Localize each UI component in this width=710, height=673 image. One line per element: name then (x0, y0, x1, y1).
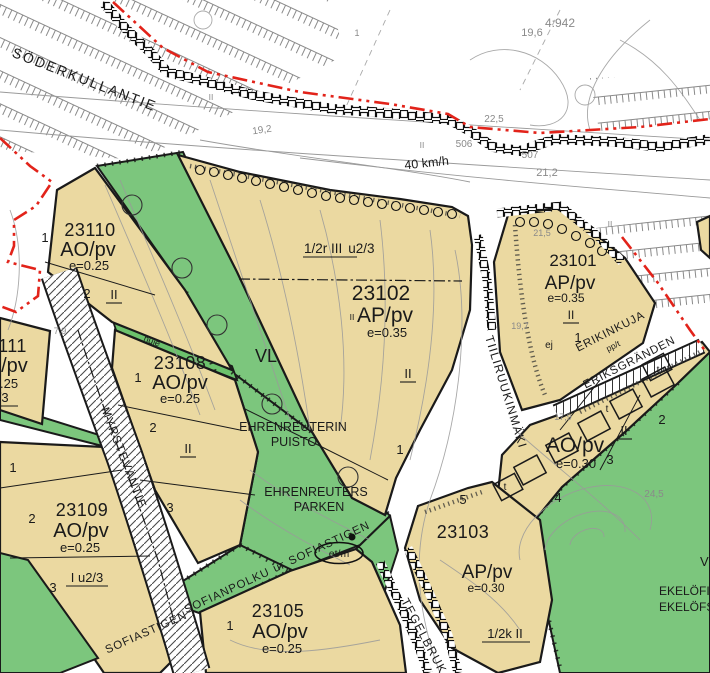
etm-dot (349, 534, 356, 541)
t-marker: t (504, 482, 507, 493)
roman-ii-mark: II (608, 219, 613, 229)
zone-id-23103: 23103 (437, 522, 490, 542)
zone-e-23108: e=0.25 (160, 391, 200, 406)
roman-ii-mark: II (209, 92, 214, 102)
elevation-21-5: 21,5 (533, 228, 551, 238)
plot-number: 1 (574, 330, 581, 345)
park-label-v: V (700, 554, 709, 569)
park-label-ekelof-fi: EKELÖFI (659, 584, 710, 598)
zone-id-23110: 23110 (64, 220, 115, 240)
zone-e-23111: e=0.25 (0, 376, 18, 391)
plot-number: 1 (396, 442, 403, 457)
zone-e-23102: e=0.35 (367, 325, 407, 340)
zoning-map-canvas[interactable]: SÖDERKULLANTIE 40 km/h TIILIRUUKINMÄKI M… (0, 0, 710, 673)
plot-number: 3 (166, 500, 173, 515)
zone-id-23101: 23101 (549, 251, 596, 270)
plot-number: 3 (49, 580, 56, 595)
zone-code-23109: AO/pv (53, 520, 109, 542)
zone-id-23109: 23109 (56, 500, 109, 520)
zone-e-23110: e=0.25 (69, 258, 109, 273)
storeys-23108: II (184, 441, 191, 456)
storeys-23102: II (404, 366, 411, 381)
contour-knoll (575, 85, 595, 105)
park-label-parken: PARKEN (294, 500, 344, 514)
zone-u-23111: u2/3 (0, 390, 9, 405)
roman-ii-mark: II (420, 140, 425, 150)
zone-id-23108: 23108 (154, 353, 207, 373)
existing-building-rows-topleft (0, 0, 345, 160)
zone-id-23105: 23105 (252, 601, 305, 621)
plot-number: 2 (149, 420, 156, 435)
park-label-vl: VL (255, 346, 277, 366)
zone-code-23105: AO/pv (252, 621, 308, 643)
zone-top-23102-underlined: 1/2r III (304, 241, 342, 256)
elevation-19-2: 19,2 (252, 124, 273, 138)
plot-number: 2 (658, 412, 665, 427)
number-1: 1 (354, 28, 359, 38)
road-edge (300, 158, 710, 198)
park-label-ehrenreuterin: EHRENREUTERIN (239, 420, 347, 434)
parcel-4-942: 4:942 (545, 16, 575, 30)
elevation-22-5: 22,5 (484, 114, 504, 125)
zone-e-ao030: e=0.30 (556, 456, 596, 471)
plot-number: 1 (9, 460, 16, 475)
plot-number: 2 (83, 286, 90, 301)
zone-code-23102: AP/pv (357, 304, 414, 327)
ej-label: ej (545, 340, 553, 351)
speed-limit-label: 40 km/h (404, 154, 450, 173)
storeys-small-23102: II (350, 312, 355, 322)
zone-id-23111: 23111 (0, 336, 27, 356)
parcel-506: 506 (456, 139, 473, 150)
plot-number: 1 (41, 230, 48, 245)
storeys-23103: 1/2k II (487, 626, 522, 641)
park-label-ekelof-sv: EKELÖFS (659, 600, 710, 614)
zone-code-23111: AO/pv (0, 355, 28, 377)
zone-u-23109: I u2/3 (71, 570, 104, 585)
elevation-17-9: 17,9 (554, 412, 572, 422)
elevation-24-5: 24,5 (644, 489, 664, 500)
etm-label: et/m (329, 548, 350, 560)
zone-code-ao030: AO/pv (546, 434, 605, 457)
zone-top-23102: 1/2r IIIu2/3 (304, 241, 375, 256)
storeys-ao030: II (620, 423, 627, 438)
storeys-23110: II (110, 287, 117, 302)
park-label-ehrenreuters: EHRENREUTERS (264, 485, 368, 499)
plot-number: 4 (554, 490, 561, 505)
chain-tiiliruukinmaki (478, 235, 492, 330)
elevation-19-7: 19,7 (511, 321, 529, 331)
plot-number: 1 (134, 370, 141, 385)
elevation-21-2: 21,2 (536, 167, 557, 179)
t-marker: t (657, 365, 660, 376)
parcel-507: 507 (522, 150, 539, 161)
t-marker: t (606, 404, 609, 415)
zone-code-23103: AP/pv (462, 562, 513, 583)
plot-number: 1 (226, 618, 233, 633)
plot-number: 2 (28, 511, 35, 526)
elevation-7-9: 7,9 (54, 326, 67, 336)
plot-number: 5 (459, 492, 466, 507)
storeys-23101: II (568, 308, 575, 322)
zone-e-23105: e=0.25 (262, 641, 302, 656)
zone-top-23102-u23: u2/3 (348, 241, 374, 256)
zone-id-23102: 23102 (352, 282, 410, 305)
plot-number: 3 (606, 452, 613, 467)
elevation-19-6: 19,6 (521, 27, 542, 39)
park-label-puisto: PUISTO (271, 435, 318, 449)
zone-e-23109: e=0.25 (60, 540, 100, 555)
zone-e-23101: e=0.35 (547, 291, 584, 305)
zone-e-23103: e=0.30 (467, 581, 504, 595)
